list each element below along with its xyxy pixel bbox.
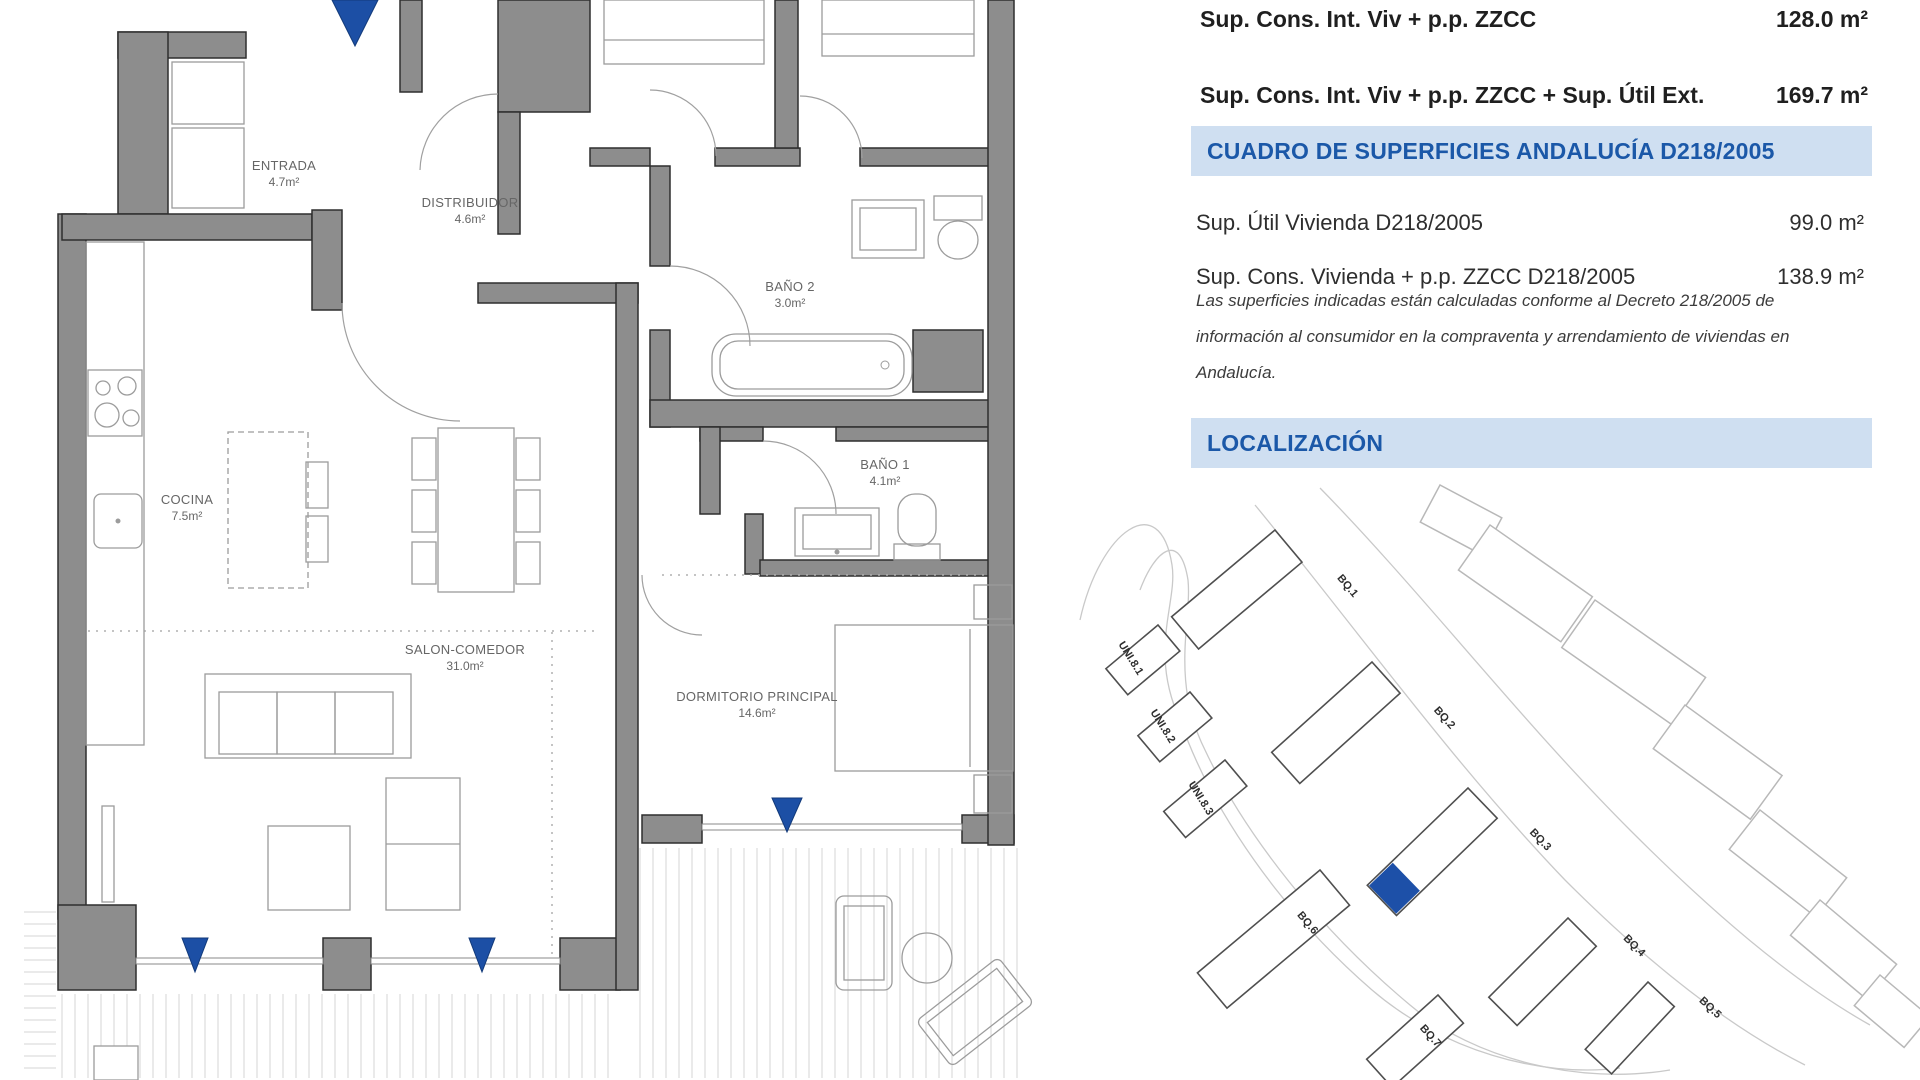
- outdoor-table: [902, 933, 952, 983]
- washbasin: [852, 200, 924, 258]
- block-bq5: [1585, 982, 1674, 1074]
- room-label-cocina: COCINA: [161, 492, 213, 507]
- room-area-bano1: 4.1m²: [870, 474, 901, 488]
- brochure-page: ENTRADA 4.7m² DISTRIBUIDOR 4.6m² BAÑO 2 …: [0, 0, 1920, 1080]
- planter: [94, 1046, 138, 1080]
- surface-summary: Sup. Cons. Int. Viv + p.p. ZZCC 128.0 m²…: [1200, 6, 1868, 116]
- legal-note: Las superficies indicadas están calculad…: [1196, 283, 1836, 391]
- context-buildings: [1420, 485, 1920, 1047]
- coffee-table: [268, 826, 350, 910]
- section-header-cuadro: CUADRO DE SUPERFICIES ANDALUCÍA D218/200…: [1191, 126, 1872, 176]
- block-bq4: [1489, 918, 1596, 1025]
- room-area-dormitorio: 14.6m²: [738, 706, 775, 720]
- kitchen-island: [228, 432, 308, 588]
- kitchen-sink: [94, 494, 142, 548]
- outdoor-chair: [836, 896, 892, 990]
- room-label-salon: SALON-COMEDOR: [405, 642, 525, 657]
- side-deck: [24, 912, 56, 1068]
- floor-plan-svg: ENTRADA 4.7m² DISTRIBUIDOR 4.6m² BAÑO 2 …: [0, 0, 1040, 1080]
- dotted-lines: [88, 575, 986, 957]
- room-label-dormitorio: DORMITORIO PRINCIPAL: [676, 689, 838, 704]
- armchair: [386, 778, 460, 910]
- window-arrow-icon: [469, 938, 495, 972]
- dining-table: [412, 428, 540, 592]
- toilet: [894, 494, 940, 560]
- cuadro-row: Sup. Útil Vivienda D218/2005 99.0 m²: [1196, 210, 1864, 236]
- section-header-text: LOCALIZACIÓN: [1191, 430, 1383, 457]
- windows: [136, 824, 962, 964]
- bathtub: [712, 334, 912, 396]
- terrace-deck: [62, 994, 608, 1078]
- room-area-bano2: 3.0m²: [775, 296, 806, 310]
- window-arrow-icon: [182, 938, 208, 972]
- stool: [306, 462, 328, 508]
- closet: [172, 62, 244, 124]
- cooktop: [88, 370, 142, 436]
- room-label-distribuidor: DISTRIBUIDOR: [422, 195, 519, 210]
- block-bq1: [1172, 530, 1302, 649]
- room-area-salon: 31.0m²: [446, 659, 483, 673]
- room-area-distribuidor: 4.6m²: [455, 212, 486, 226]
- stool: [306, 516, 328, 562]
- section-header-text: CUADRO DE SUPERFICIES ANDALUCÍA D218/200…: [1191, 138, 1775, 165]
- sideboard: [102, 806, 114, 902]
- block-label-bq5: BQ.5: [1697, 995, 1724, 1021]
- block-bq3: [1367, 788, 1497, 915]
- summary-label: Sup. Cons. Int. Viv + p.p. ZZCC + Sup. Ú…: [1200, 82, 1704, 109]
- block-bq7: [1367, 995, 1464, 1080]
- room-label-entrada: ENTRADA: [252, 158, 316, 173]
- closet: [172, 128, 244, 208]
- summary-label: Sup. Cons. Int. Viv + p.p. ZZCC: [1200, 6, 1536, 33]
- door-arcs: [342, 90, 862, 635]
- cuadro-label: Sup. Útil Vivienda D218/2005: [1196, 210, 1483, 236]
- room-label-bano1: BAÑO 1: [860, 457, 909, 472]
- terrace-deck: [640, 848, 1017, 1078]
- washbasin: [795, 508, 879, 556]
- bed: [822, 0, 974, 56]
- entrance-arrow-icon: [332, 0, 378, 46]
- summary-value: 128.0 m²: [1776, 6, 1868, 33]
- room-labels: ENTRADA 4.7m² DISTRIBUIDOR 4.6m² BAÑO 2 …: [161, 158, 910, 720]
- room-area-entrada: 4.7m²: [269, 175, 300, 189]
- sun-lounger: [916, 957, 1034, 1067]
- section-header-localizacion: LOCALIZACIÓN: [1191, 418, 1872, 468]
- block-label-bq2: BQ.2: [1431, 704, 1457, 731]
- toilet: [934, 196, 982, 259]
- room-label-bano2: BAÑO 2: [765, 279, 814, 294]
- block-bq2: [1272, 662, 1400, 784]
- block-uni82: [1138, 692, 1212, 762]
- block-bq6: [1197, 870, 1349, 1008]
- bed-main: [835, 585, 1013, 813]
- sofa: [205, 674, 411, 758]
- block-label-bq1: BQ.1: [1334, 572, 1360, 599]
- room-area-cocina: 7.5m²: [172, 509, 203, 523]
- site-map-svg: BQ.1 BQ.2 BQ.3 BQ.4 BQ.5 BQ.6 BQ.7 UNI.8…: [1020, 470, 1920, 1080]
- block-label-bq4: BQ.4: [1621, 933, 1648, 960]
- summary-row: Sup. Cons. Int. Viv + p.p. ZZCC 128.0 m²: [1200, 6, 1868, 40]
- summary-row: Sup. Cons. Int. Viv + p.p. ZZCC + Sup. Ú…: [1200, 82, 1868, 116]
- cuadro-value: 99.0 m²: [1789, 210, 1864, 236]
- bed: [604, 0, 764, 64]
- block-label-bq3: BQ.3: [1527, 827, 1553, 854]
- summary-value: 169.7 m²: [1776, 82, 1868, 109]
